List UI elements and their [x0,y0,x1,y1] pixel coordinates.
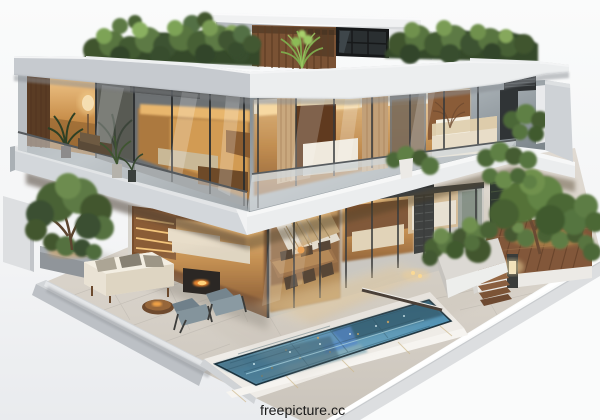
svg-text:freepicture.cc: freepicture.cc [260,403,345,419]
